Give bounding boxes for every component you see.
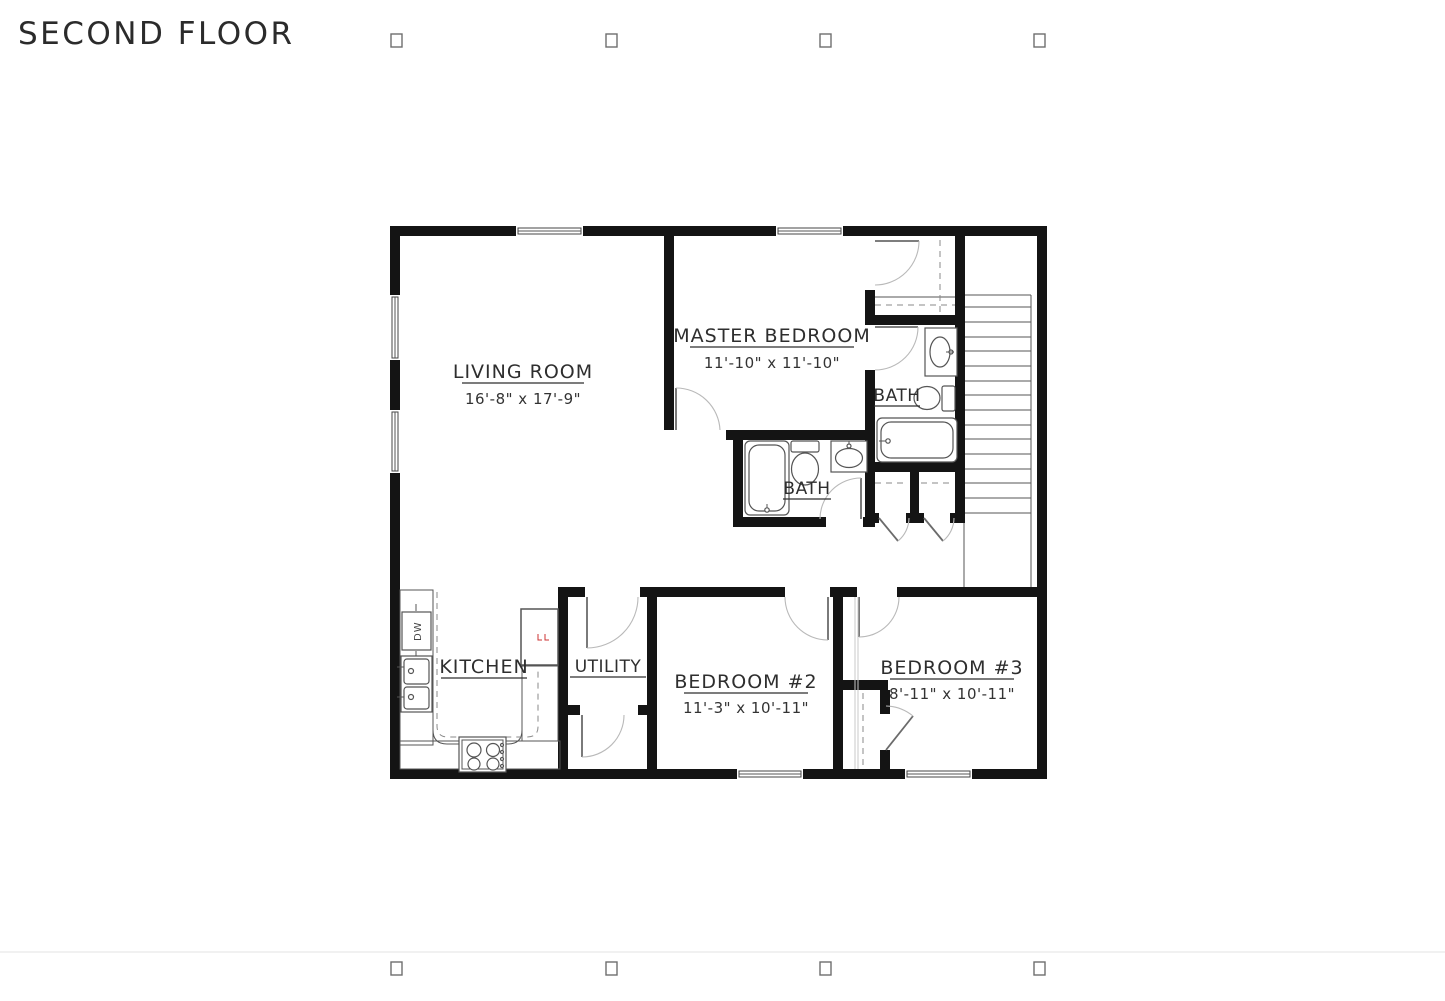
window-icon — [905, 769, 972, 779]
registration-mark — [1034, 962, 1045, 975]
dishwasher-label: DW — [413, 621, 424, 641]
room-labels: LIVING ROOM 16'-8" x 17'-9" MASTER BEDRO… — [439, 325, 1023, 717]
linen-closet-door — [924, 518, 954, 541]
floor-plan-canvas: SECOND FLOOR — [0, 0, 1445, 1001]
staircase — [964, 295, 1031, 587]
window-icon — [390, 410, 400, 473]
registration-mark — [606, 34, 617, 47]
bedroom2-door — [785, 597, 828, 640]
utility-door — [587, 597, 638, 648]
window-icon — [776, 226, 843, 236]
room-dims-bedroom-3: 8'-11" x 10'-11" — [889, 685, 1015, 703]
master-closet-door — [875, 241, 919, 285]
bathtub-icon — [745, 441, 789, 515]
registration-mark — [606, 962, 617, 975]
master-bath-door — [875, 327, 918, 370]
page-title: SECOND FLOOR — [18, 16, 295, 52]
window-icon — [390, 295, 400, 360]
stove-icon — [459, 737, 506, 772]
room-label-kitchen: KITCHEN — [439, 656, 528, 678]
bedroom3-closet-door — [886, 706, 913, 750]
registration-mark — [391, 962, 402, 975]
room-dims-master-bedroom: 11'-10" x 11'-10" — [704, 354, 840, 372]
kitchen-sink-icon — [397, 656, 432, 712]
room-label-bedroom-3: BEDROOM #3 — [880, 657, 1023, 679]
kitchen-fixtures: DW — [397, 590, 560, 772]
registration-mark — [820, 34, 831, 47]
room-label-living-room: LIVING ROOM — [453, 361, 593, 383]
hall-bath-fixtures — [745, 441, 867, 515]
registration-mark — [820, 962, 831, 975]
dishwasher-icon: DW — [402, 604, 431, 658]
registration-mark — [1034, 34, 1045, 47]
pantry-door — [582, 715, 624, 757]
linen-closet-door — [879, 518, 909, 541]
bedroom3-entry-door — [859, 597, 899, 637]
stair-treads — [965, 307, 1031, 513]
room-dims-living-room: 16'-8" x 17'-9" — [465, 390, 581, 408]
vanity-sink-icon — [925, 328, 957, 376]
room-dims-bedroom-2: 11'-3" x 10'-11" — [683, 699, 809, 717]
registration-mark — [391, 34, 402, 47]
room-label-bedroom-2: BEDROOM #2 — [674, 671, 817, 693]
floor-plan-sheet: SECOND FLOOR — [0, 0, 1445, 1001]
room-label-master-bedroom: MASTER BEDROOM — [673, 325, 870, 347]
vanity-sink-icon — [831, 441, 867, 472]
bathtub-icon — [877, 418, 957, 462]
room-label-utility: UTILITY — [575, 657, 642, 677]
window-icon — [516, 226, 583, 236]
window-icon — [737, 769, 803, 779]
registration-marks — [391, 34, 1045, 975]
room-label-hall-bath: BATH — [783, 479, 830, 499]
master-bedroom-door — [676, 388, 720, 430]
room-label-master-bath: BATH — [873, 386, 920, 406]
